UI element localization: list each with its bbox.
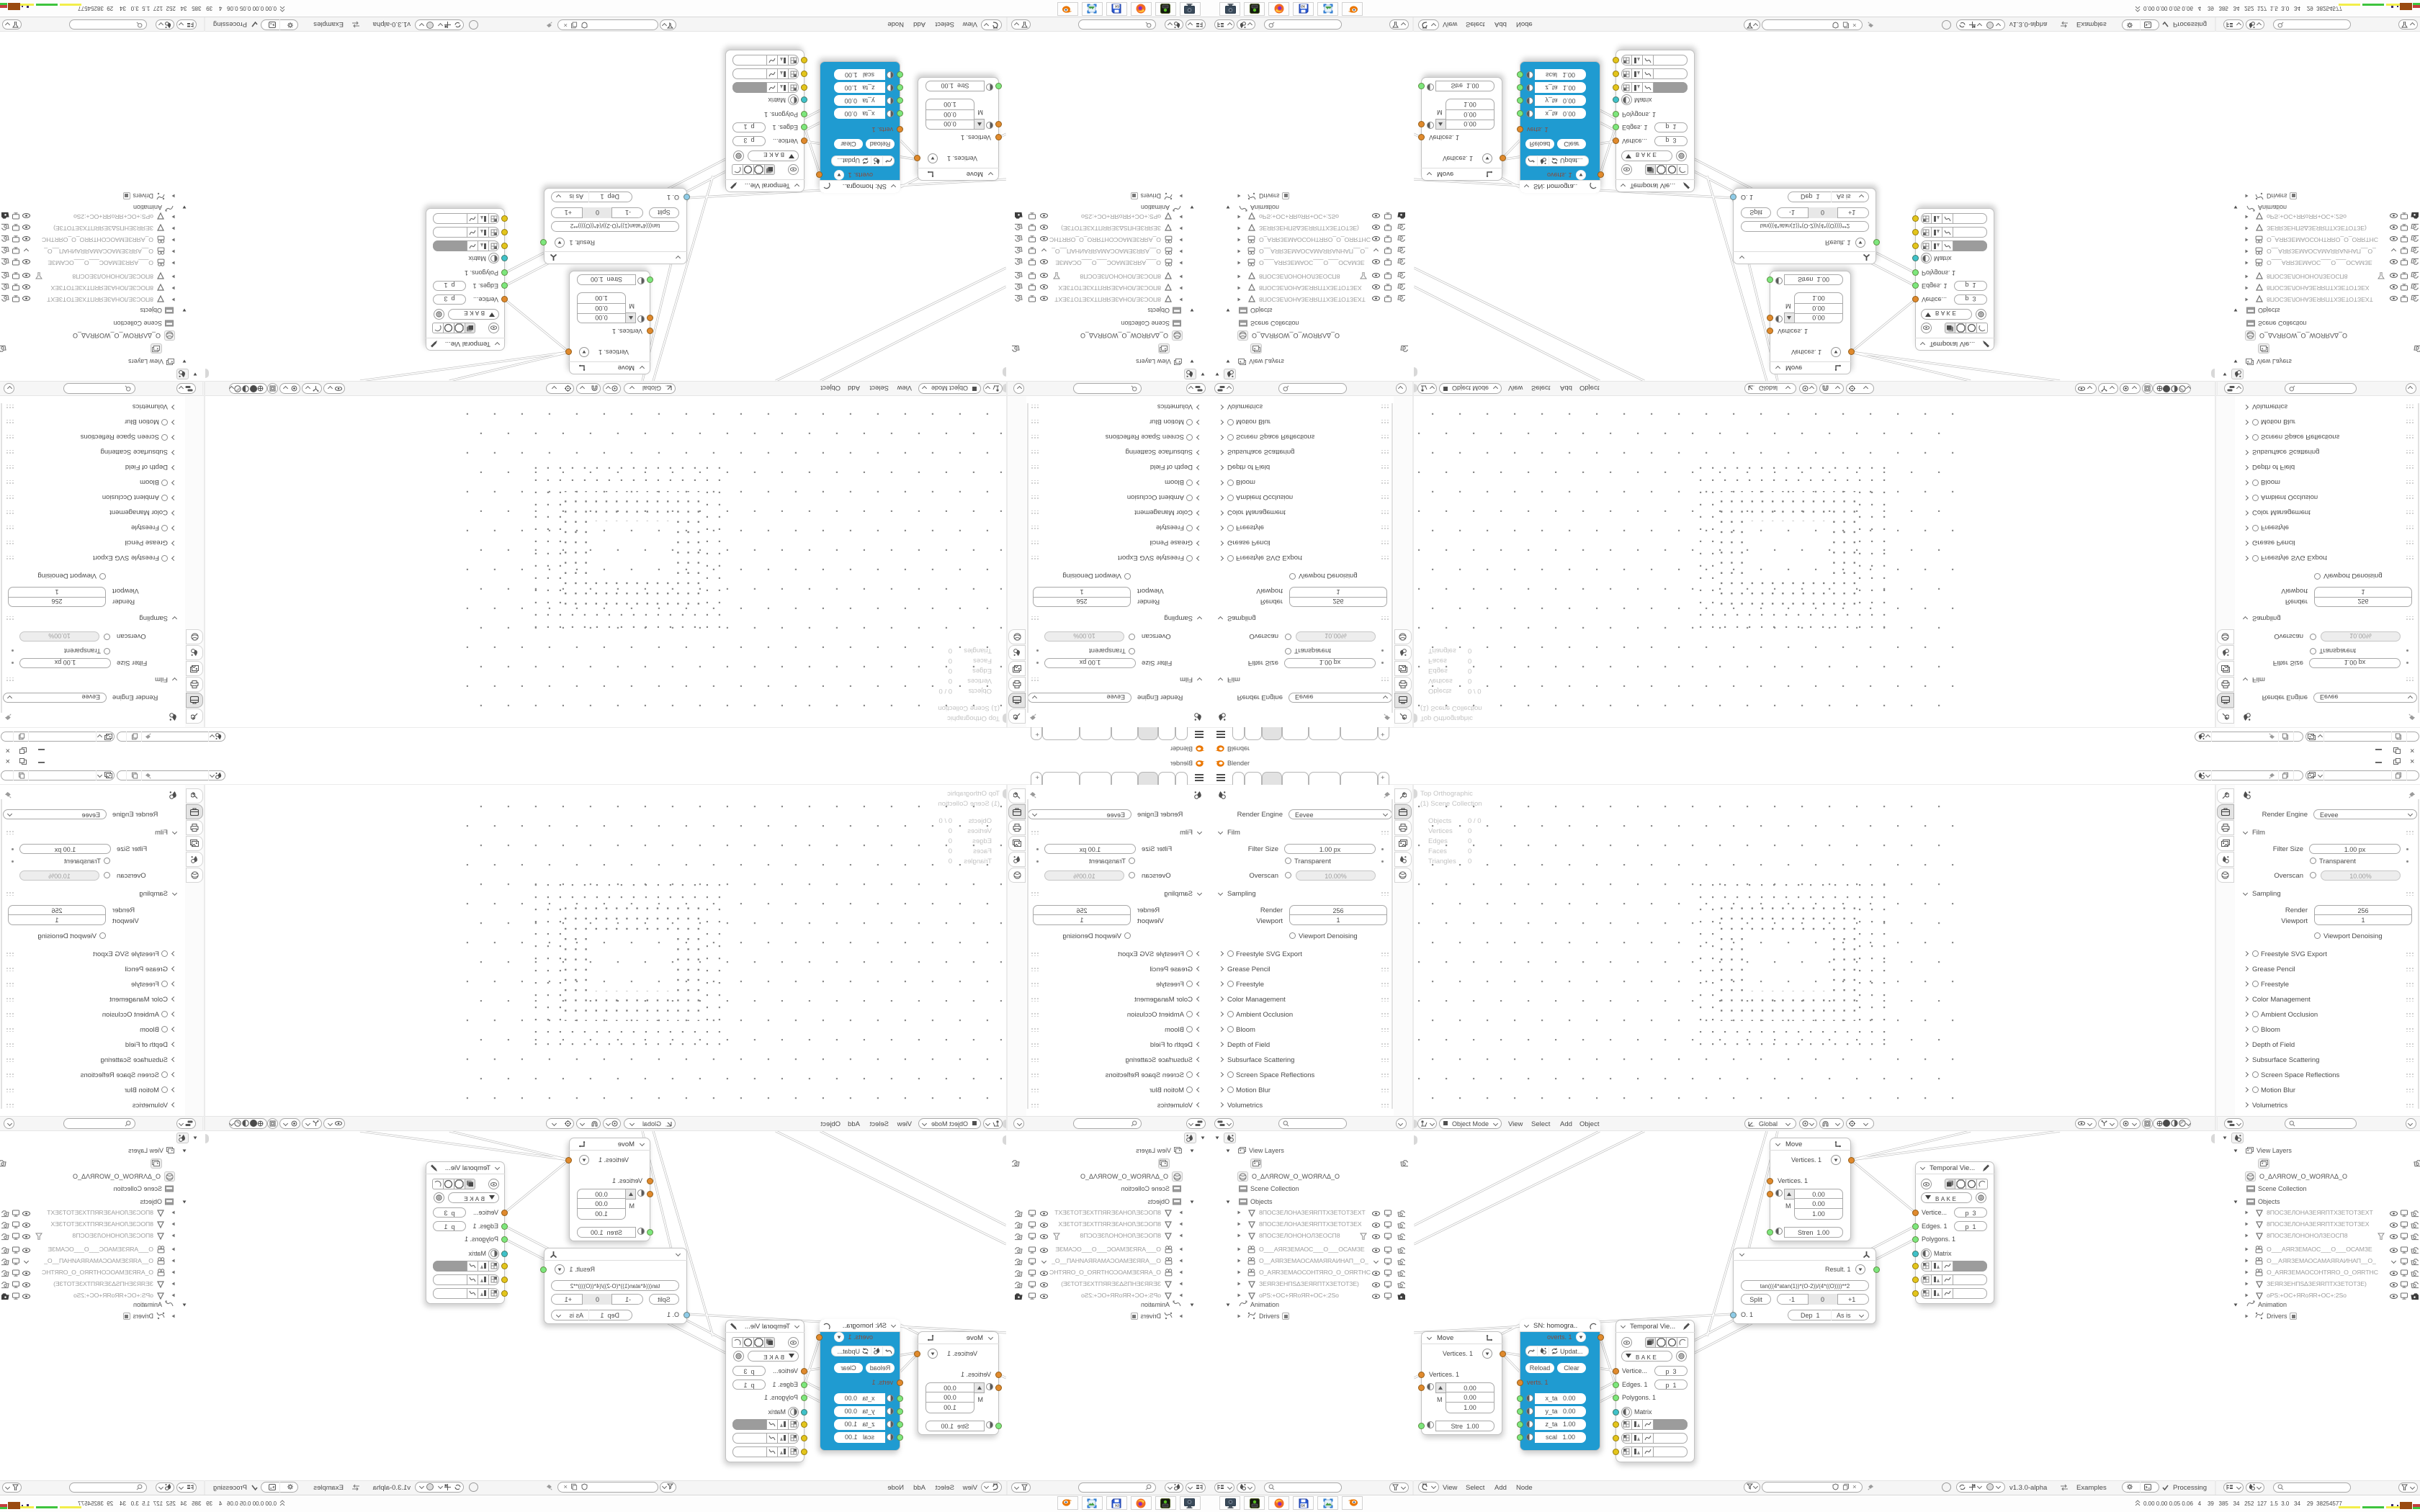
svg-text:64: 64 (1301, 1504, 1305, 1508)
svg-text:64: 64 (1301, 4, 1305, 8)
svg-text:64: 64 (1115, 4, 1119, 8)
svg-text:64: 64 (1115, 1504, 1119, 1508)
